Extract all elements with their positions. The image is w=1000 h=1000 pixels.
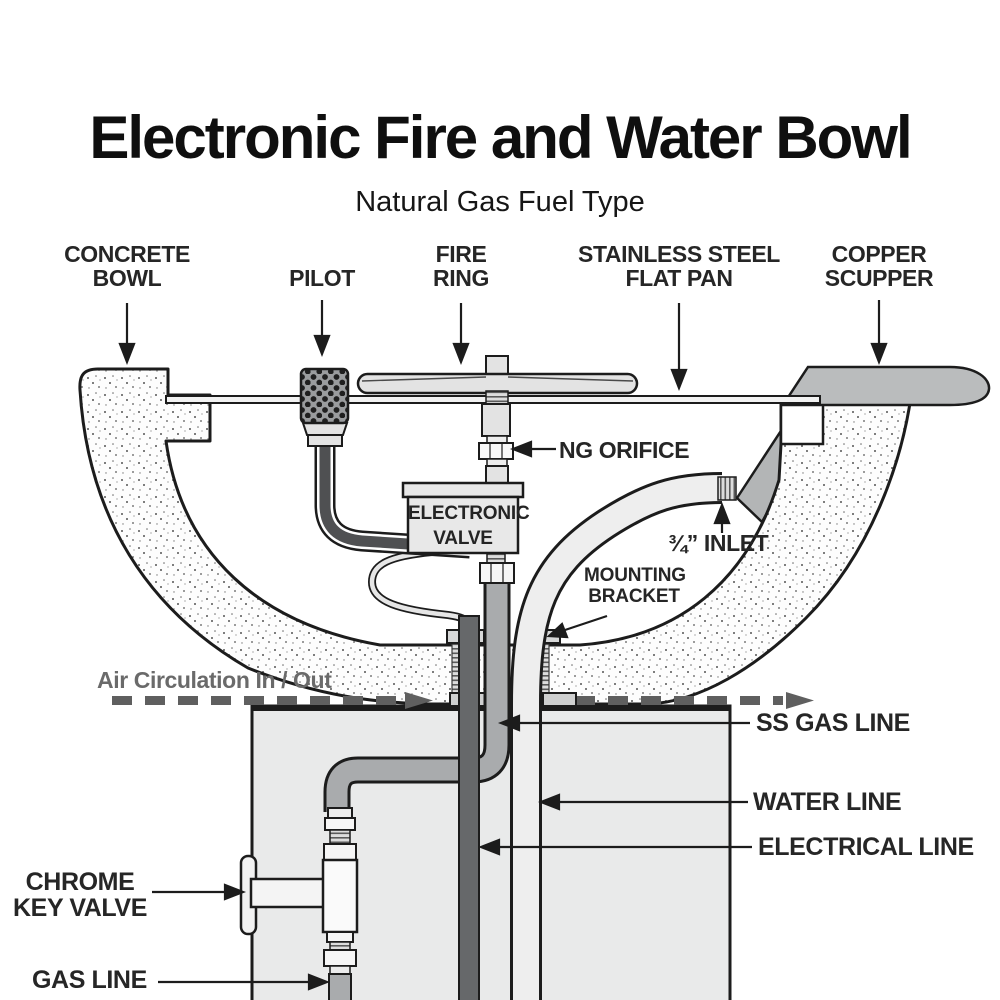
- label-inlet: ¾” INLET: [668, 530, 768, 557]
- inlet-threads: [718, 477, 736, 500]
- label-ng-orifice: NG ORIFICE: [559, 437, 689, 464]
- label-water-line: WATER LINE: [753, 788, 901, 817]
- ng-orifice-stack: [479, 391, 513, 485]
- label-gas-line: GAS LINE: [32, 966, 147, 995]
- label-electrical-line: ELECTRICAL LINE: [758, 833, 974, 862]
- page-title: Electronic Fire and Water Bowl: [0, 103, 1000, 172]
- electrical-line-conduit: [459, 616, 479, 1000]
- label-pilot: PILOT: [262, 267, 382, 291]
- label-copper-scupper: COPPER SCUPPER: [809, 243, 949, 291]
- label-air-circulation: Air Circulation In / Out: [97, 667, 331, 694]
- page-subtitle: Natural Gas Fuel Type: [0, 186, 1000, 219]
- fire-water-bowl-diagram-page: Electronic Fire and Water Bowl Natural G…: [0, 0, 1000, 1000]
- pilot-assembly: [301, 369, 348, 446]
- label-mounting-bracket: MOUNTING BRACKET: [584, 566, 684, 608]
- rim-ledge: [781, 404, 823, 444]
- label-chrome-key-valve: CHROME KEY VALVE: [10, 869, 150, 921]
- electrical-cable: [372, 552, 466, 624]
- gas-line-pipe: [329, 974, 351, 1000]
- label-electronic-valve: ELECTRONIC VALVE: [408, 502, 518, 551]
- label-fire-ring: FIRE RING: [411, 243, 511, 291]
- fire-ring-assembly: [358, 356, 637, 393]
- label-concrete-bowl: CONCRETE BOWL: [47, 243, 207, 291]
- label-flat-pan: STAINLESS STEEL FLAT PAN: [569, 243, 789, 291]
- label-ss-gas-line: SS GAS LINE: [756, 709, 910, 738]
